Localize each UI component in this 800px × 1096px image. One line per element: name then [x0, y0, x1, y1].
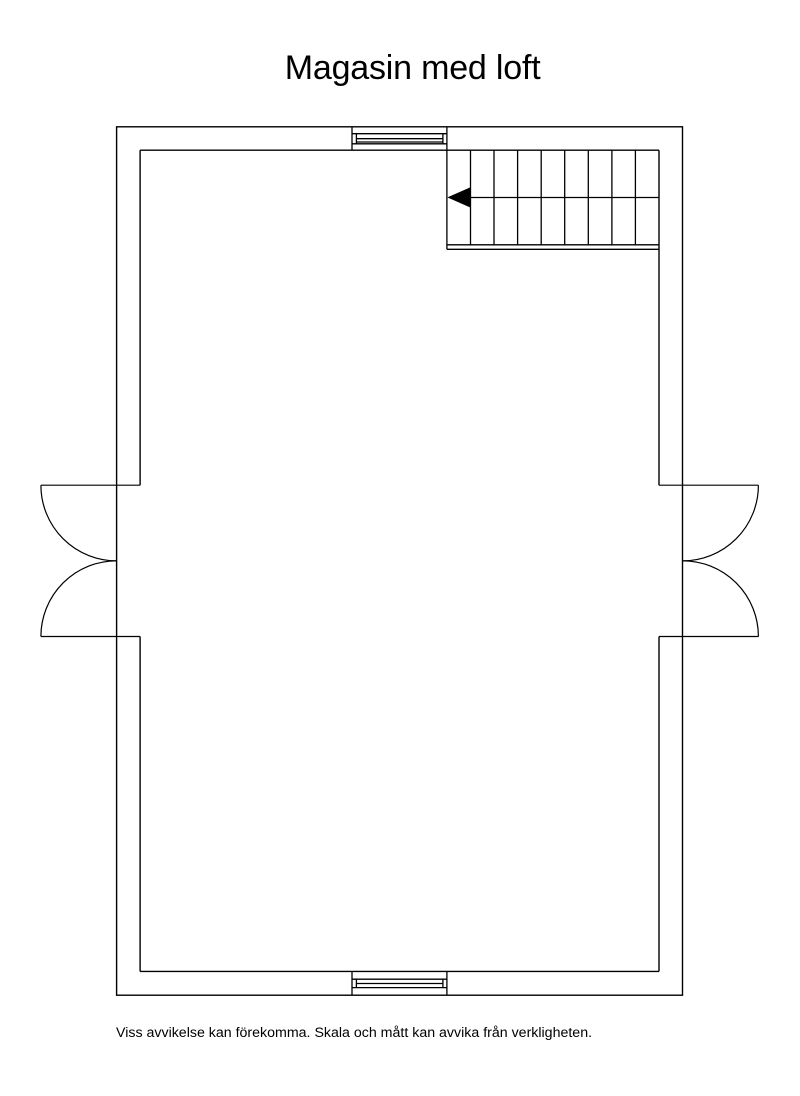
svg-text:Magasin med loft: Magasin med loft — [285, 49, 541, 87]
svg-text:Viss avvikelse kan förekomma.: Viss avvikelse kan förekomma. Skala och … — [116, 1025, 592, 1041]
